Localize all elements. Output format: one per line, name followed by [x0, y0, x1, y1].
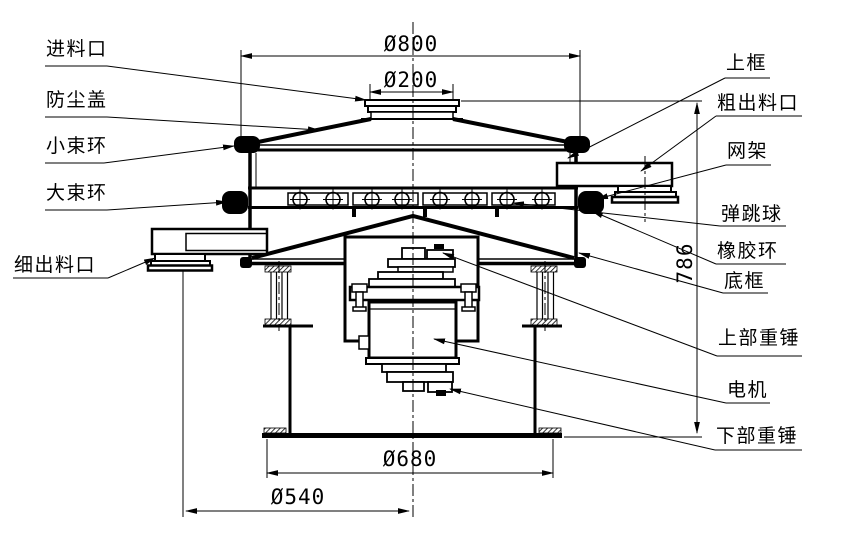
- label-dust-cover: 防尘盖: [45, 89, 319, 130]
- leader-line: [641, 116, 716, 171]
- dim-base-flange-diameter-text: Ø680: [383, 447, 438, 471]
- support-spring-right: [531, 261, 557, 331]
- deck-pin: [423, 209, 427, 217]
- feed-inlet: [361, 100, 463, 119]
- leader-line: [107, 202, 227, 210]
- label-text: 弹跳球: [721, 203, 783, 225]
- label-text: 进料口: [46, 38, 108, 60]
- flange-bolt-left: [352, 284, 367, 292]
- small-clamp-ring-left: [234, 136, 260, 153]
- label-text: 网架: [727, 140, 768, 162]
- label-text: 大束环: [46, 182, 108, 204]
- label-text: 上框: [726, 52, 767, 74]
- label-text: 底框: [724, 270, 765, 292]
- label-text: 防尘盖: [46, 89, 108, 111]
- support-spring-left: [265, 261, 291, 331]
- lower-weight-bolt: [436, 390, 446, 396]
- dim-overall-height-text: 786: [673, 243, 697, 284]
- leader-line: [450, 389, 715, 450]
- motor-terminal: [359, 336, 369, 349]
- dimension-base-flange-diameter: Ø680: [267, 439, 553, 478]
- leader-line: [104, 146, 234, 163]
- label-text: 上部重锤: [718, 327, 800, 349]
- label-text: 下部重锤: [716, 425, 798, 447]
- lower-weight: [382, 364, 453, 396]
- label-coarse-outlet: 粗出料口: [641, 92, 802, 171]
- small-clamp-ring-right: [564, 136, 590, 153]
- label-fine-outlet: 细出料口: [13, 254, 155, 278]
- label-text: 橡胶环: [717, 240, 779, 262]
- deck-pin: [352, 209, 356, 217]
- upper-weight-bolt: [434, 244, 444, 249]
- label-text: 小束环: [46, 135, 108, 157]
- dim-top-diameter-text: Ø800: [384, 32, 439, 56]
- vibrating-sieve-diagram-page: Ø800 Ø200 786 Ø680 Ø540: [0, 0, 860, 539]
- motor-body: [359, 302, 459, 364]
- label-large-clamp-ring: 大束环: [45, 182, 227, 210]
- dim-base-inner-diameter-text: Ø540: [271, 485, 326, 509]
- leader-line: [434, 339, 726, 403]
- label-text: 细出料口: [14, 254, 96, 276]
- label-small-clamp-ring: 小束环: [45, 135, 234, 163]
- leader-line: [568, 78, 725, 158]
- deck-pin: [495, 209, 499, 217]
- flange-bolt-right: [461, 284, 476, 292]
- dimension-inlet-diameter: Ø200: [370, 68, 453, 100]
- leader-line: [513, 203, 720, 226]
- label-upper-weight: 上部重锤: [443, 253, 802, 356]
- label-text: 粗出料口: [717, 92, 799, 114]
- leader-line: [579, 253, 723, 293]
- leader-line: [107, 66, 366, 100]
- dim-inlet-diameter-text: Ø200: [384, 68, 439, 92]
- leader-line: [107, 117, 319, 130]
- vibrating-sieve-technical-drawing: Ø800 Ø200 786 Ø680 Ø540: [0, 0, 860, 539]
- label-text: 电机: [727, 379, 768, 401]
